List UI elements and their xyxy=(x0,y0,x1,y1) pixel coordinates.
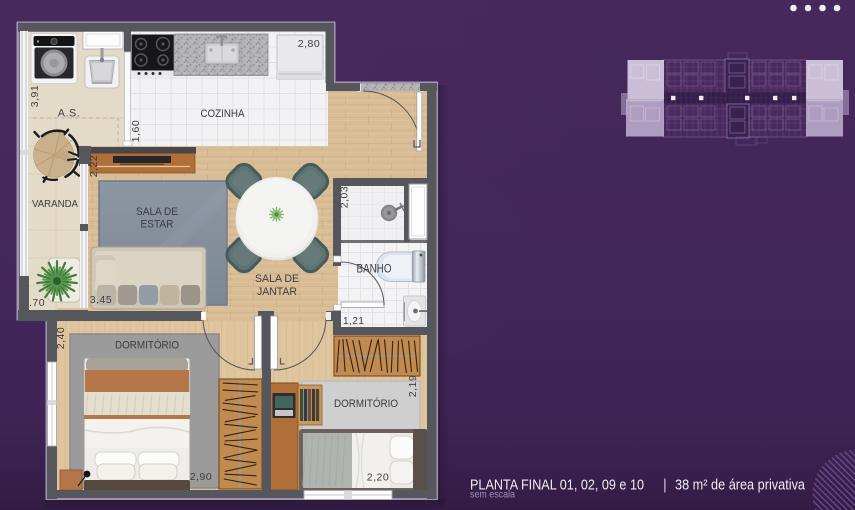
svg-text:2,40: 2,40 xyxy=(55,327,67,349)
svg-text:3,45: 3,45 xyxy=(90,294,112,306)
svg-text:SALA DE: SALA DE xyxy=(136,206,178,218)
svg-text:ESTAR: ESTAR xyxy=(141,219,174,231)
svg-text:3,91: 3,91 xyxy=(29,85,41,107)
svg-text:A.S.: A.S. xyxy=(58,108,80,120)
svg-text:sem escala: sem escala xyxy=(470,490,515,501)
svg-text:2,20: 2,20 xyxy=(367,472,389,484)
svg-text:2,90: 2,90 xyxy=(190,471,212,483)
svg-text:SALA DE: SALA DE xyxy=(255,273,299,285)
svg-text:.70: .70 xyxy=(29,297,45,309)
svg-text:VARANDA: VARANDA xyxy=(32,198,78,210)
svg-text:|: | xyxy=(663,478,667,494)
svg-text:DORMITÓRIO: DORMITÓRIO xyxy=(115,339,179,352)
svg-text:2,80: 2,80 xyxy=(298,38,320,50)
svg-text:38 m² de área privativa: 38 m² de área privativa xyxy=(675,478,806,494)
svg-text:JANTAR: JANTAR xyxy=(257,286,297,298)
svg-text:DORMITÓRIO: DORMITÓRIO xyxy=(334,397,398,410)
svg-text:COZINHA: COZINHA xyxy=(201,108,246,120)
svg-text:2,22: 2,22 xyxy=(88,155,100,177)
svg-text:BANHO: BANHO xyxy=(357,264,392,276)
svg-text:2,03: 2,03 xyxy=(339,186,351,208)
svg-text:2,19: 2,19 xyxy=(407,375,419,397)
svg-text:1,60: 1,60 xyxy=(130,120,142,142)
svg-text:1,21: 1,21 xyxy=(343,316,364,327)
